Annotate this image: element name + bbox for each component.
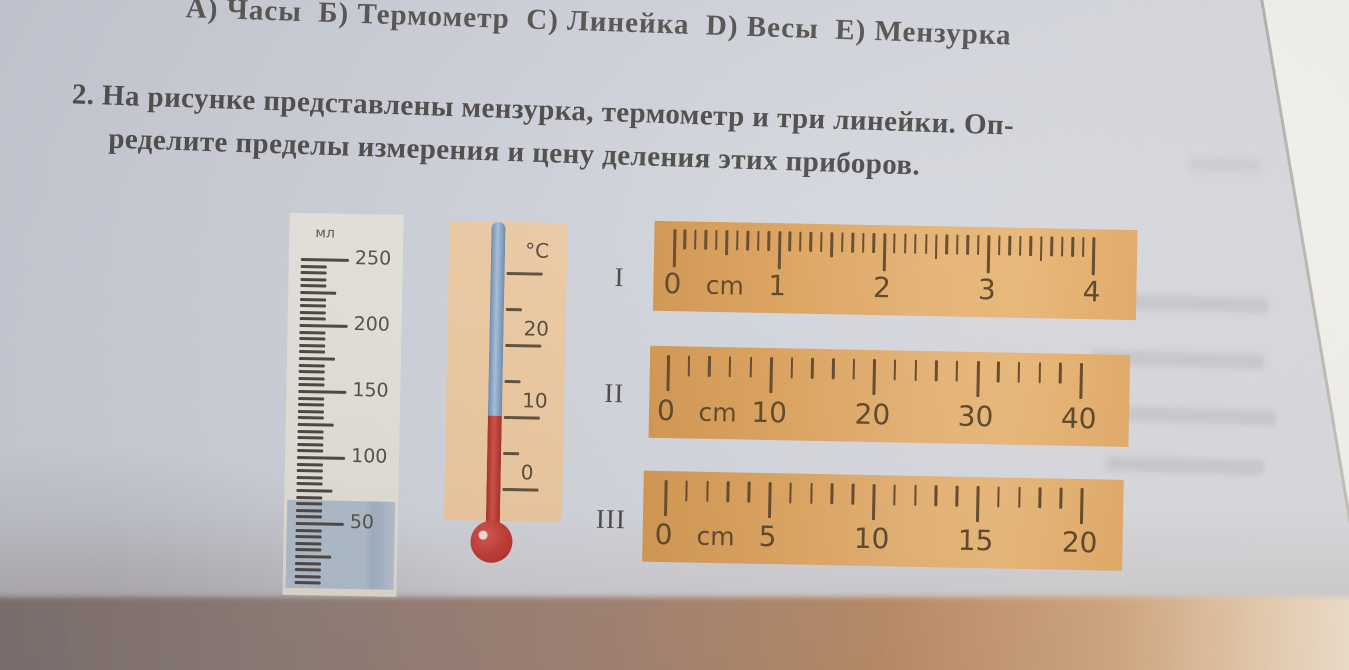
beaker-tick [297, 449, 323, 452]
beaker-tick [297, 443, 323, 446]
ruler-minor-tick [893, 484, 896, 505]
ruler-2-numeral: II [604, 378, 625, 409]
ruler-unit-label: cm [705, 271, 744, 301]
ruler-minor-tick [935, 485, 938, 506]
beaker-tick [297, 436, 323, 439]
beaker-tick [300, 291, 336, 295]
ruler-minor-tick [925, 234, 928, 254]
ruler-minor-tick [811, 358, 814, 379]
beaker-tick [299, 357, 335, 361]
thermometer-unit-label: °C [525, 238, 549, 262]
ruler-number: 30 [957, 400, 993, 434]
ruler-major-tick [778, 231, 782, 269]
ruler-number: 15 [957, 524, 993, 558]
ruler-major-tick [987, 235, 991, 273]
ruler-number: 3 [978, 273, 996, 306]
ruler-minor-tick [904, 234, 907, 254]
ruler-major-tick [976, 486, 980, 522]
beaker-tick [295, 575, 321, 578]
beaker-tick [299, 331, 325, 334]
beaker-tick [298, 383, 324, 386]
ruler-minor-tick [706, 481, 709, 502]
ruler-number: 10 [853, 522, 889, 556]
ruler-minor-tick [1059, 488, 1062, 509]
beaker-tick [298, 423, 334, 427]
ruler-number: 5 [758, 520, 776, 553]
ruler-minor-tick [1008, 236, 1011, 256]
beaker-tick [298, 397, 324, 400]
beaker-tick [301, 265, 327, 268]
ruler-number: 2 [873, 271, 891, 304]
thermometer-mercury-column [486, 416, 502, 524]
measuring-cylinder: мл 25020015010050 [282, 213, 403, 597]
ruler-minor-tick [830, 232, 833, 257]
thermometer-major-tick [507, 272, 543, 276]
ruler-minor-tick [956, 235, 959, 255]
beaker-tick [296, 496, 322, 499]
ruler-minor-tick [789, 482, 792, 503]
beaker-tick [295, 562, 321, 565]
beaker-tick [300, 298, 326, 301]
textbook-page-photo: А) Часы Б) Термометр С) Линейка D) Весы … [0, 0, 1349, 670]
ruler-minor-tick [851, 484, 854, 505]
ruler-minor-tick [967, 235, 970, 255]
ruler-minor-tick [841, 232, 844, 252]
beaker-tick [301, 258, 349, 262]
thermometer-bulb [470, 520, 513, 563]
beaker-scale: 25020015010050 [290, 213, 404, 215]
ruler-major-tick [1079, 363, 1083, 399]
ruler-minor-tick [1071, 237, 1074, 257]
ruler-minor-tick [914, 485, 917, 506]
thermometer: °C 20100 [444, 221, 568, 522]
ruler-minor-tick [914, 360, 917, 381]
ruler-major-tick [770, 357, 774, 393]
thermometer-scale-label: 20 [523, 316, 549, 340]
ruler-minor-tick [977, 235, 980, 255]
beaker-tick [298, 430, 324, 433]
ruler-minor-tick [708, 356, 711, 377]
ruler-minor-tick [1017, 362, 1020, 383]
ruler-minor-tick [956, 361, 959, 382]
beaker-tick [298, 403, 324, 406]
ruler-major-tick [872, 484, 876, 520]
bulb-highlight [479, 530, 488, 539]
ruler-minor-tick [1061, 237, 1064, 257]
beaker-tick [298, 390, 346, 394]
ruler-minor-tick [851, 233, 854, 253]
ruler-minor-tick [685, 480, 688, 501]
ruler-minor-tick [1029, 236, 1032, 256]
ruler-major-tick [664, 480, 668, 516]
beaker-tick [299, 337, 325, 340]
thermometer-minor-tick [506, 308, 522, 311]
beaker-tick [299, 377, 325, 380]
ruler-minor-tick [914, 234, 917, 254]
thermometer-scale: 20100 [450, 221, 568, 223]
ruler-number: 0 [663, 267, 681, 300]
ruler-minor-tick [809, 232, 812, 252]
ruler-1: 01234cm [653, 221, 1138, 320]
beaker-unit-label: мл [315, 225, 335, 241]
beaker-tick [300, 311, 326, 314]
ruler-minor-tick [862, 233, 865, 253]
beaker-tick [296, 529, 322, 532]
ruler-major-tick [976, 361, 980, 397]
ruler-minor-tick [872, 233, 875, 253]
beaker-tick [296, 489, 332, 493]
ruler-number: 1 [768, 269, 786, 302]
ruler-unit-label: cm [696, 522, 735, 552]
ruler-minor-tick [749, 357, 752, 378]
thermometer-major-tick [502, 488, 538, 492]
ruler-minor-tick [935, 234, 938, 259]
ruler-number: 0 [654, 518, 672, 551]
ruler-minor-tick [746, 231, 749, 251]
beaker-tick [300, 317, 326, 320]
beaker-tick [297, 456, 345, 460]
figure-area: мл 25020015010050 °C 20100 I 01234cm II … [0, 0, 1349, 670]
beaker-scale-label: 150 [352, 379, 389, 402]
ruler-minor-tick [1050, 236, 1053, 256]
ruler-minor-tick [687, 355, 690, 376]
ruler-minor-tick [893, 233, 896, 253]
beaker-tick [296, 509, 322, 512]
ruler-minor-tick [998, 235, 1001, 255]
thermometer-minor-tick [503, 452, 519, 455]
ruler-minor-tick [820, 232, 823, 252]
ruler-minor-tick [946, 234, 949, 254]
ruler-minor-tick [997, 361, 1000, 382]
ruler-minor-tick [767, 231, 770, 251]
ruler-minor-tick [1019, 236, 1022, 256]
ruler-1-numeral: I [614, 262, 625, 293]
ruler-minor-tick [831, 483, 834, 504]
thermometer-scale-label: 0 [521, 460, 534, 484]
beaker-tick [300, 324, 348, 328]
beaker-tick [299, 370, 325, 373]
ruler-minor-tick [852, 359, 855, 380]
beaker-scale-label: 200 [353, 313, 390, 336]
ruler-minor-tick [955, 486, 958, 507]
beaker-tick [300, 278, 326, 281]
beaker-scale-label: 100 [351, 445, 388, 468]
ruler-minor-tick [790, 357, 793, 378]
beaker-tick [300, 304, 326, 307]
ruler-minor-tick [729, 356, 732, 377]
beaker-tick [297, 482, 323, 485]
ruler-3: 05101520cm [642, 471, 1124, 571]
beaker-scale-label: 250 [355, 247, 392, 270]
ruler-minor-tick [788, 231, 791, 251]
ruler-unit-label: cm [698, 398, 737, 428]
ruler-number: 20 [854, 398, 890, 432]
ruler-minor-tick [1059, 363, 1062, 384]
beaker-tick [297, 469, 323, 472]
ruler-3-numeral: III [596, 504, 627, 536]
ruler-number: 0 [657, 394, 675, 427]
ruler-major-tick [666, 355, 670, 391]
ruler-major-tick [873, 359, 877, 395]
beaker-tick [297, 463, 323, 466]
ruler-minor-tick [757, 231, 760, 251]
ruler-minor-tick [1082, 237, 1085, 257]
beaker-tick [298, 416, 324, 419]
ruler-2: 010203040cm [649, 346, 1131, 447]
ruler-minor-tick [715, 230, 718, 250]
ruler-minor-tick [997, 486, 1000, 507]
ruler-minor-tick [799, 232, 802, 252]
thermometer-major-tick [504, 416, 540, 420]
ruler-major-tick [882, 233, 886, 271]
ruler-minor-tick [1039, 487, 1042, 508]
beaker-tick [301, 271, 327, 274]
ruler-minor-tick [725, 230, 728, 255]
ruler-number: 10 [751, 396, 787, 430]
ruler-minor-tick [810, 483, 813, 504]
beaker-tick [299, 364, 325, 367]
ruler-major-tick [1092, 237, 1096, 275]
ruler-major-tick [1080, 488, 1084, 524]
ruler-number: 40 [1061, 402, 1097, 436]
ruler-minor-tick [705, 230, 708, 250]
ruler-minor-tick [684, 229, 687, 249]
ruler-minor-tick [1038, 362, 1041, 383]
ruler-minor-tick [894, 359, 897, 380]
beaker-tick [295, 542, 321, 545]
ruler-number: 20 [1061, 526, 1097, 560]
ruler-minor-tick [832, 358, 835, 379]
ruler-minor-tick [736, 230, 739, 250]
beaker-tick [300, 284, 326, 287]
ruler-minor-tick [727, 481, 730, 502]
ruler-minor-tick [1018, 487, 1021, 508]
ruler-minor-tick [694, 230, 697, 250]
ruler-major-tick [673, 229, 677, 267]
ruler-minor-tick [747, 482, 750, 503]
thermometer-minor-tick [505, 380, 521, 383]
ruler-minor-tick [1040, 236, 1043, 261]
beaker-tick [297, 476, 323, 479]
ruler-minor-tick [935, 360, 938, 381]
thermometer-scale-label: 10 [522, 388, 548, 412]
beaker-tick [298, 410, 324, 413]
ruler-major-tick [768, 482, 772, 518]
beaker-scale-label: 50 [350, 511, 375, 533]
thermometer-major-tick [505, 344, 541, 348]
beaker-tick [299, 350, 325, 353]
beaker-tick [299, 344, 325, 347]
ruler-number: 4 [1082, 275, 1100, 308]
